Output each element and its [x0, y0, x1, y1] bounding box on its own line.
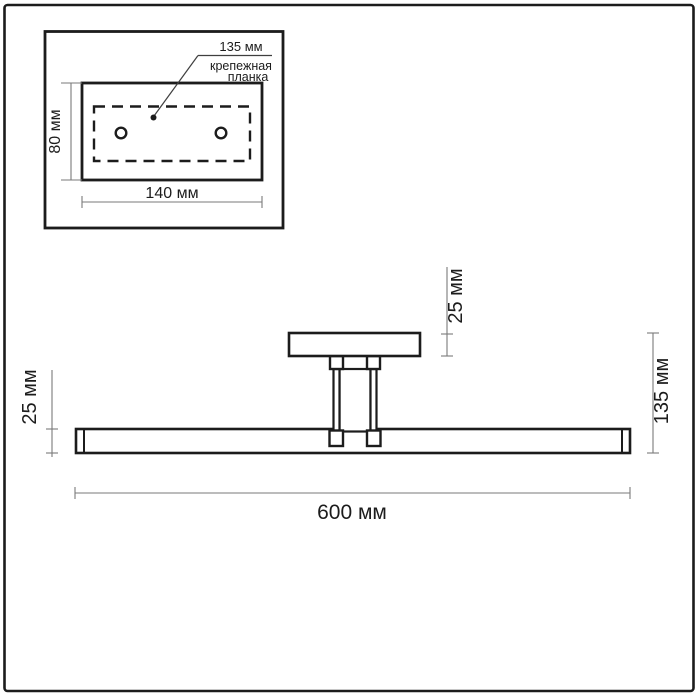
stem-post-right [371, 369, 377, 432]
label-canopy-height: 25 мм [445, 268, 467, 323]
stem-foot-right [367, 431, 381, 447]
lamp-bar [76, 429, 630, 453]
leader-dot [151, 115, 157, 121]
label-plate-height: 80 мм [47, 109, 64, 153]
screw-hole-right [216, 128, 227, 139]
label-hole-pitch: 135 мм [219, 39, 262, 54]
stem-inner-rod [340, 369, 371, 432]
dimensional-drawing: 135 мм крепежная планка 80 мм 140 мм 25 … [0, 0, 700, 700]
drawing-canvas: 135 мм крепежная планка 80 мм 140 мм 25 … [0, 0, 700, 700]
stem-flange-left [330, 356, 343, 369]
mounting-plate [82, 83, 262, 180]
stem-flange-right [367, 356, 380, 369]
label-bar-height: 25 мм [19, 369, 41, 424]
label-overall-height: 135 мм [651, 358, 673, 424]
canopy-plate [289, 333, 420, 356]
label-plate-width: 140 мм [145, 185, 198, 202]
mounting-plate-inset: 135 мм крепежная планка 80 мм 140 мм [45, 32, 283, 229]
stem-post-left [334, 369, 340, 432]
screw-hole-left [116, 128, 127, 139]
stem-foot-left [330, 431, 344, 447]
label-bracket-caption-line2: планка [228, 70, 269, 84]
lamp-front-view: 25 мм 25 мм 135 мм 600 мм [19, 267, 673, 524]
label-overall-length: 600 мм [317, 501, 387, 524]
